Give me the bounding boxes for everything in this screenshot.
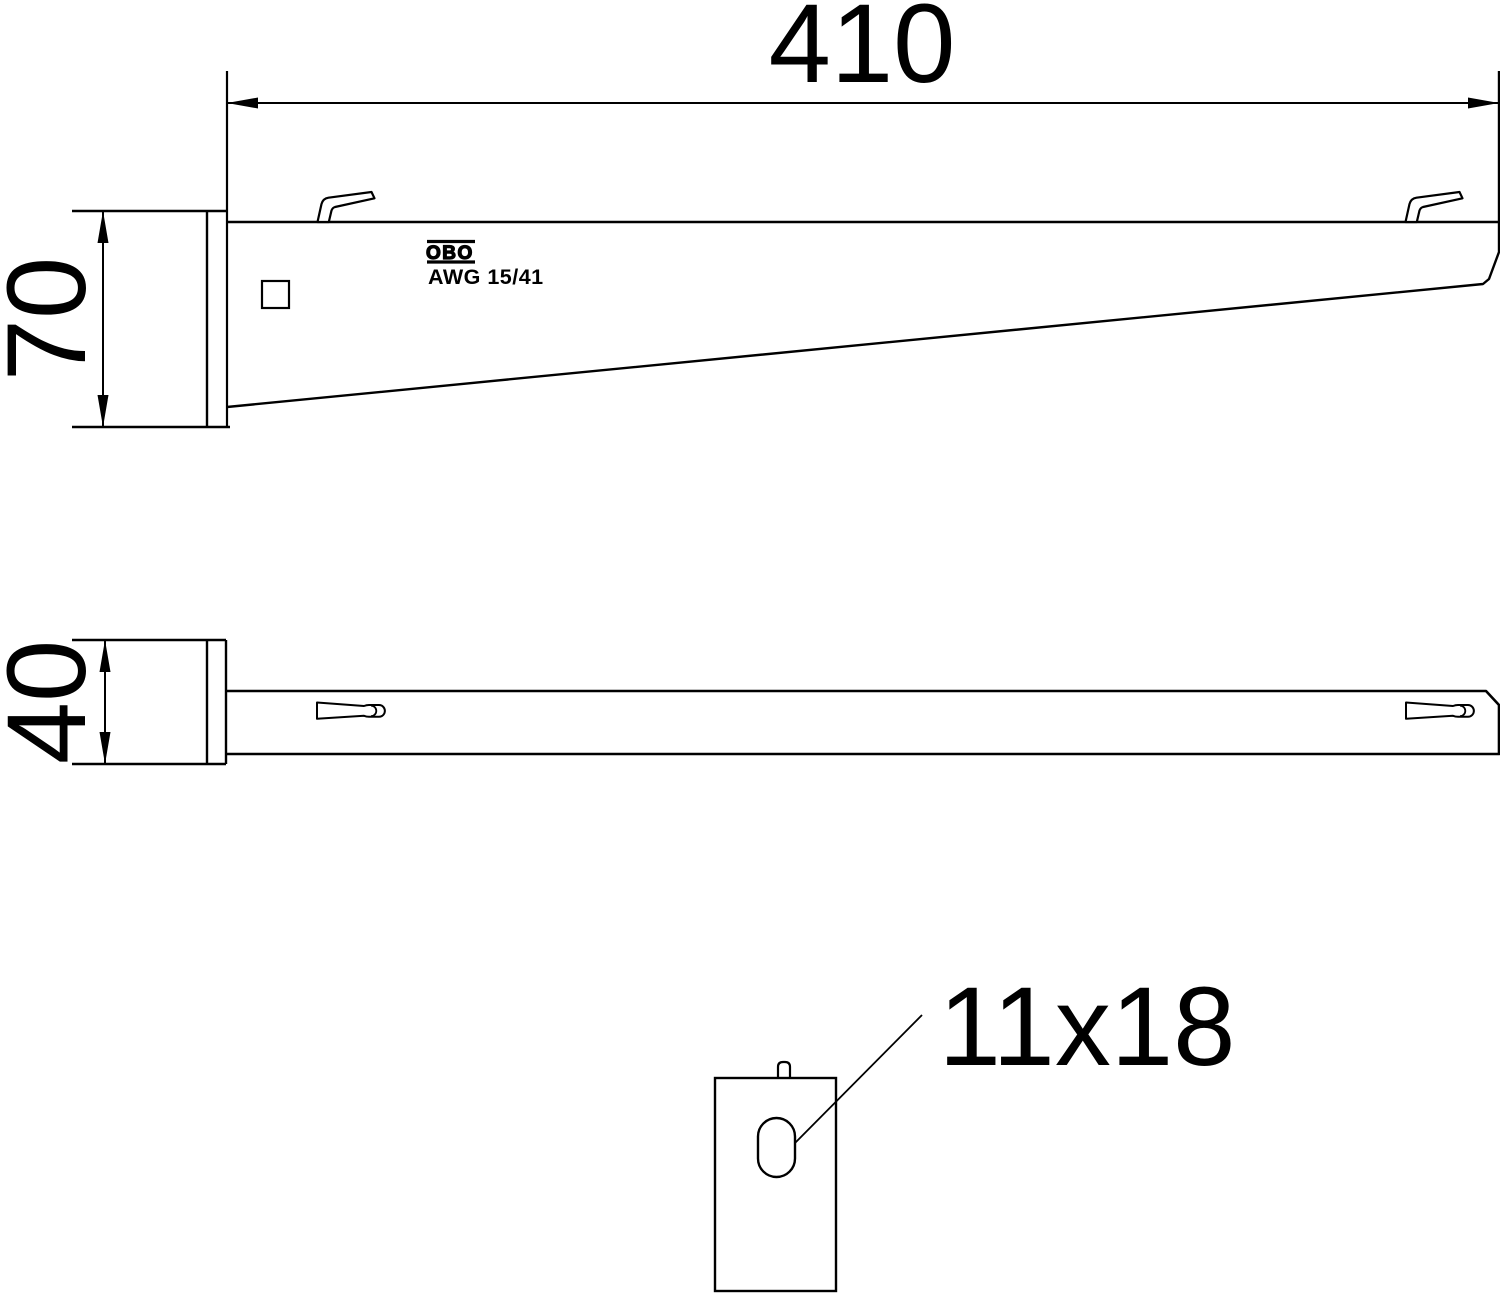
part-label: AWG 15/41	[428, 265, 544, 289]
dim-70-label: 70	[0, 257, 109, 382]
arrowhead-down	[98, 395, 109, 427]
dim-40-label: 40	[0, 640, 109, 765]
plan-view-arm-outline	[226, 691, 1499, 754]
clip-tab-left	[318, 192, 375, 222]
plate-front-face	[715, 1078, 836, 1291]
dim-410-label: 410	[769, 0, 956, 106]
dimension-length-410: 410	[227, 0, 1499, 109]
slot-right	[1406, 703, 1474, 719]
bracket-drawing: OBO AWG 15/41 410 70	[0, 0, 1500, 1296]
slot-size-label: 11x18	[939, 964, 1236, 1089]
dimension-height-70: 70	[0, 211, 109, 427]
detail-view: 11x18	[715, 964, 1235, 1291]
dimension-width-40: 40	[0, 640, 111, 765]
oblong-hole	[758, 1118, 795, 1177]
locating-lug	[778, 1062, 790, 1078]
plan-view: 40	[0, 640, 1499, 765]
arrowhead-left	[227, 98, 258, 109]
obo-logo-text: OBO	[426, 243, 474, 264]
square-hole	[262, 281, 289, 308]
obo-logo: OBO	[426, 242, 475, 265]
clip-tab-right	[1406, 192, 1463, 222]
arrowhead-up	[98, 211, 109, 243]
side-view: OBO AWG 15/41 410 70	[0, 0, 1499, 427]
arrowhead-right	[1468, 98, 1499, 109]
side-view-arm-outline	[227, 71, 1499, 407]
technical-drawing-page: OBO AWG 15/41 410 70	[0, 0, 1500, 1296]
slot-left	[317, 703, 385, 719]
